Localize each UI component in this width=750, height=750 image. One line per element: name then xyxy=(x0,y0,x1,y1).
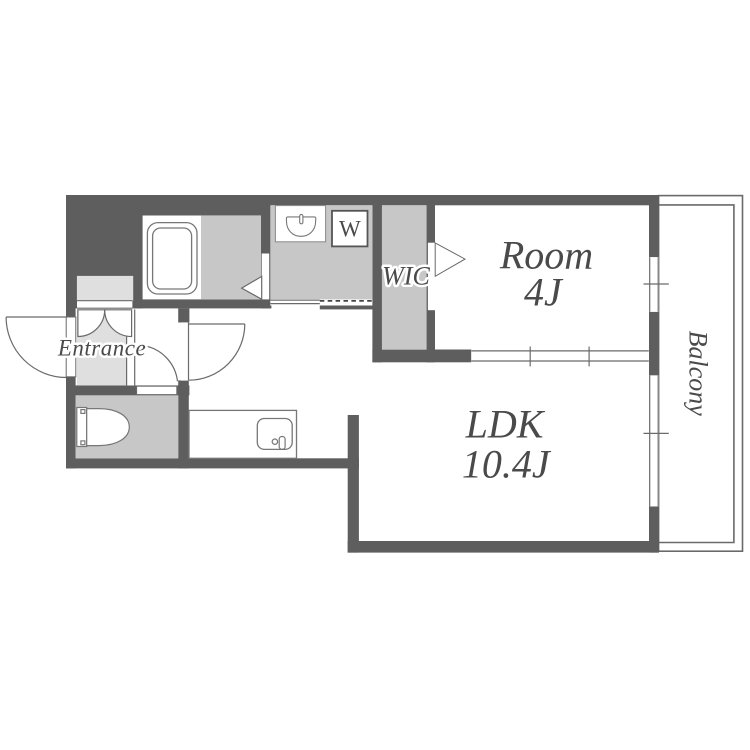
svg-text:WIC: WIC xyxy=(382,262,430,291)
svg-text:W: W xyxy=(339,216,361,241)
svg-text:Entrance: Entrance xyxy=(57,336,146,361)
svg-text:LDK: LDK xyxy=(465,402,546,447)
svg-text:10.4J: 10.4J xyxy=(462,442,552,487)
svg-text:4J: 4J xyxy=(524,270,564,315)
svg-text:Balcony: Balcony xyxy=(683,331,712,417)
